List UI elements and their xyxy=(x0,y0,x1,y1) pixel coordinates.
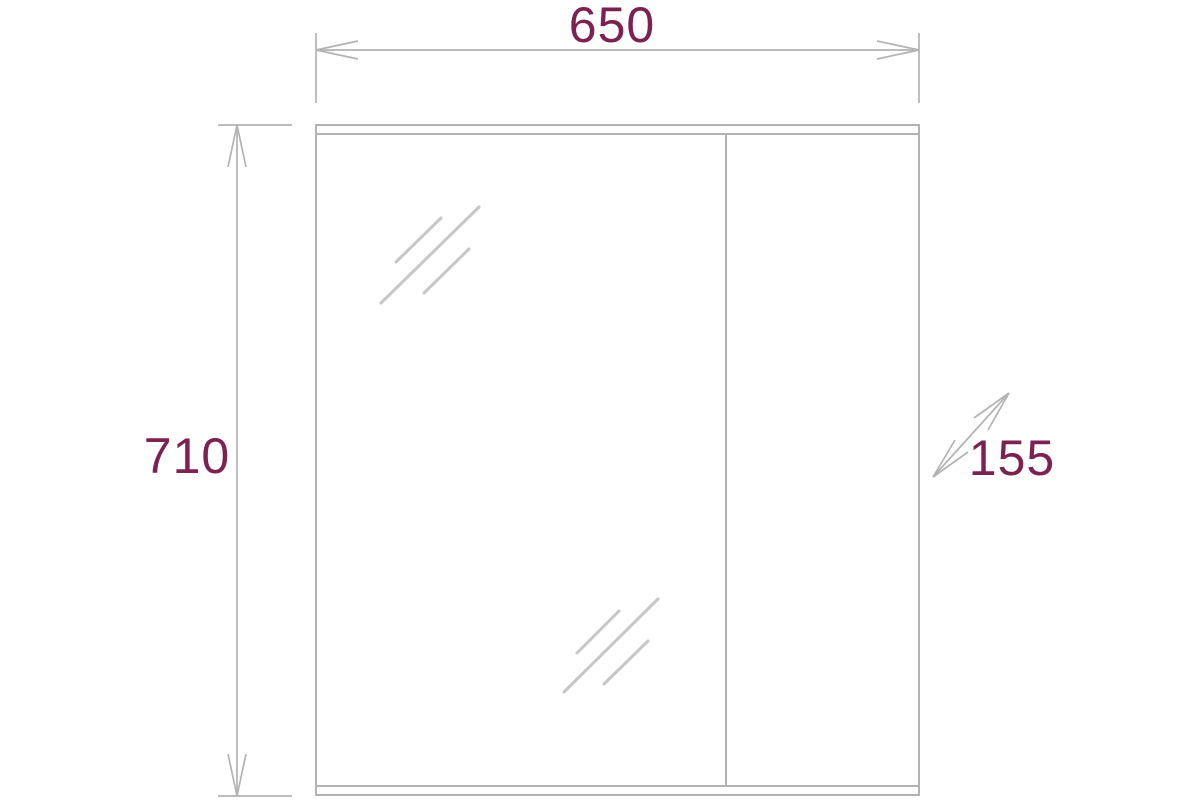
shine-stroke xyxy=(396,218,441,262)
cabinet-technical-drawing xyxy=(0,0,1200,800)
mirror-shine-upper xyxy=(381,207,479,303)
depth-dimension-label: 155 xyxy=(969,433,1055,483)
drawing-canvas: 650 710 155 xyxy=(0,0,1200,800)
mirror-shine-lower xyxy=(564,599,658,692)
height-dimension-label: 710 xyxy=(144,431,230,481)
shine-stroke xyxy=(577,611,619,653)
cabinet-outline xyxy=(316,125,919,795)
width-dimension-label: 650 xyxy=(569,0,655,50)
cabinet-body xyxy=(316,125,919,795)
